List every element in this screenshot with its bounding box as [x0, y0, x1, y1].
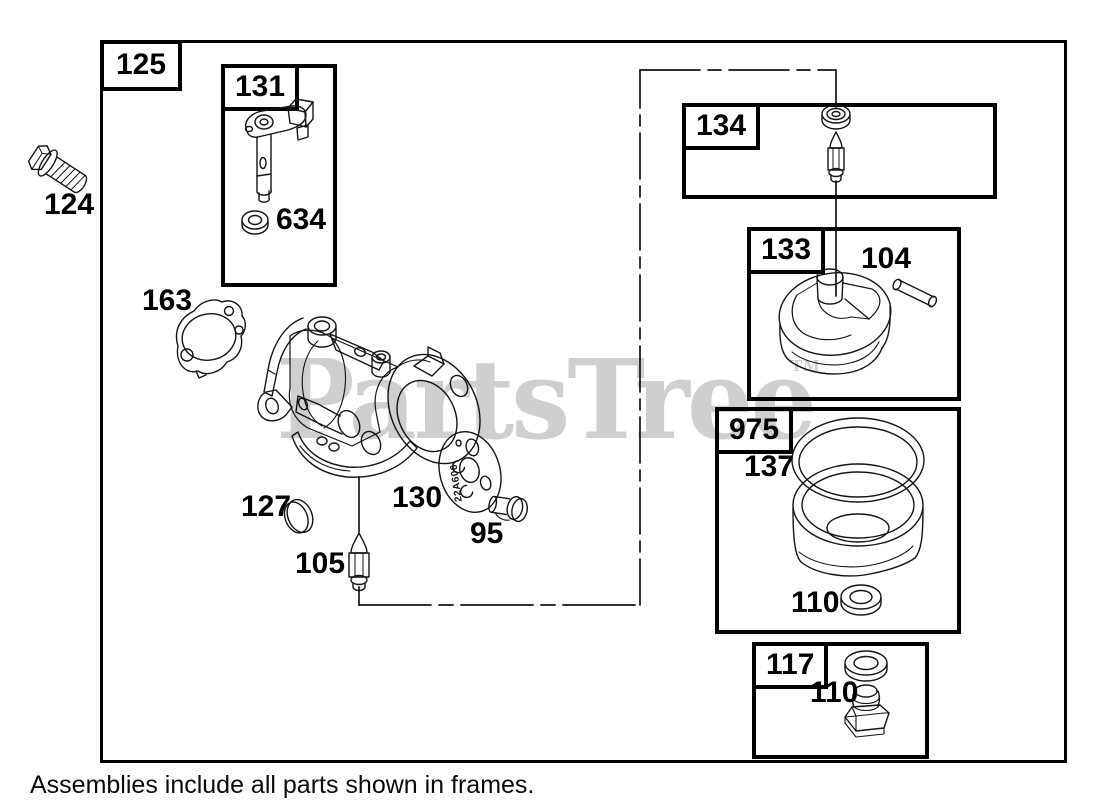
part-label-110-bowl: 110	[791, 588, 839, 618]
frame-975-tag: 975	[715, 407, 793, 454]
part-label-163: 163	[142, 286, 192, 316]
part-label-124: 124	[44, 190, 94, 220]
part-label-95: 95	[470, 519, 503, 549]
frame-133-tag: 133	[747, 227, 825, 274]
assembly-frame-133: 133	[747, 227, 961, 401]
frame-134-label: 134	[696, 109, 746, 142]
frame-117-label: 117	[766, 648, 814, 681]
part-label-110-drain: 110	[810, 678, 858, 708]
assembly-frame-131: 131	[221, 64, 337, 287]
part-label-130: 130	[392, 483, 442, 513]
part-label-104: 104	[861, 244, 911, 274]
part-label-127: 127	[241, 492, 291, 522]
frame-975-label: 975	[729, 413, 779, 446]
part-label-137: 137	[744, 452, 794, 482]
parts-diagram-page: 125 131 134 133 975 117	[0, 0, 1096, 805]
frame-134-tag: 134	[682, 103, 760, 150]
frame-125-tag: 125	[100, 40, 182, 91]
part-label-634: 634	[276, 205, 326, 235]
footer-caption: Assemblies include all parts shown in fr…	[30, 771, 534, 800]
frame-131-tag: 131	[221, 64, 299, 111]
frame-125-label: 125	[116, 48, 166, 81]
frame-131-label: 131	[235, 70, 285, 103]
assembly-frame-134: 134	[682, 103, 997, 199]
frame-133-label: 133	[761, 233, 811, 266]
part-label-105: 105	[295, 549, 345, 579]
